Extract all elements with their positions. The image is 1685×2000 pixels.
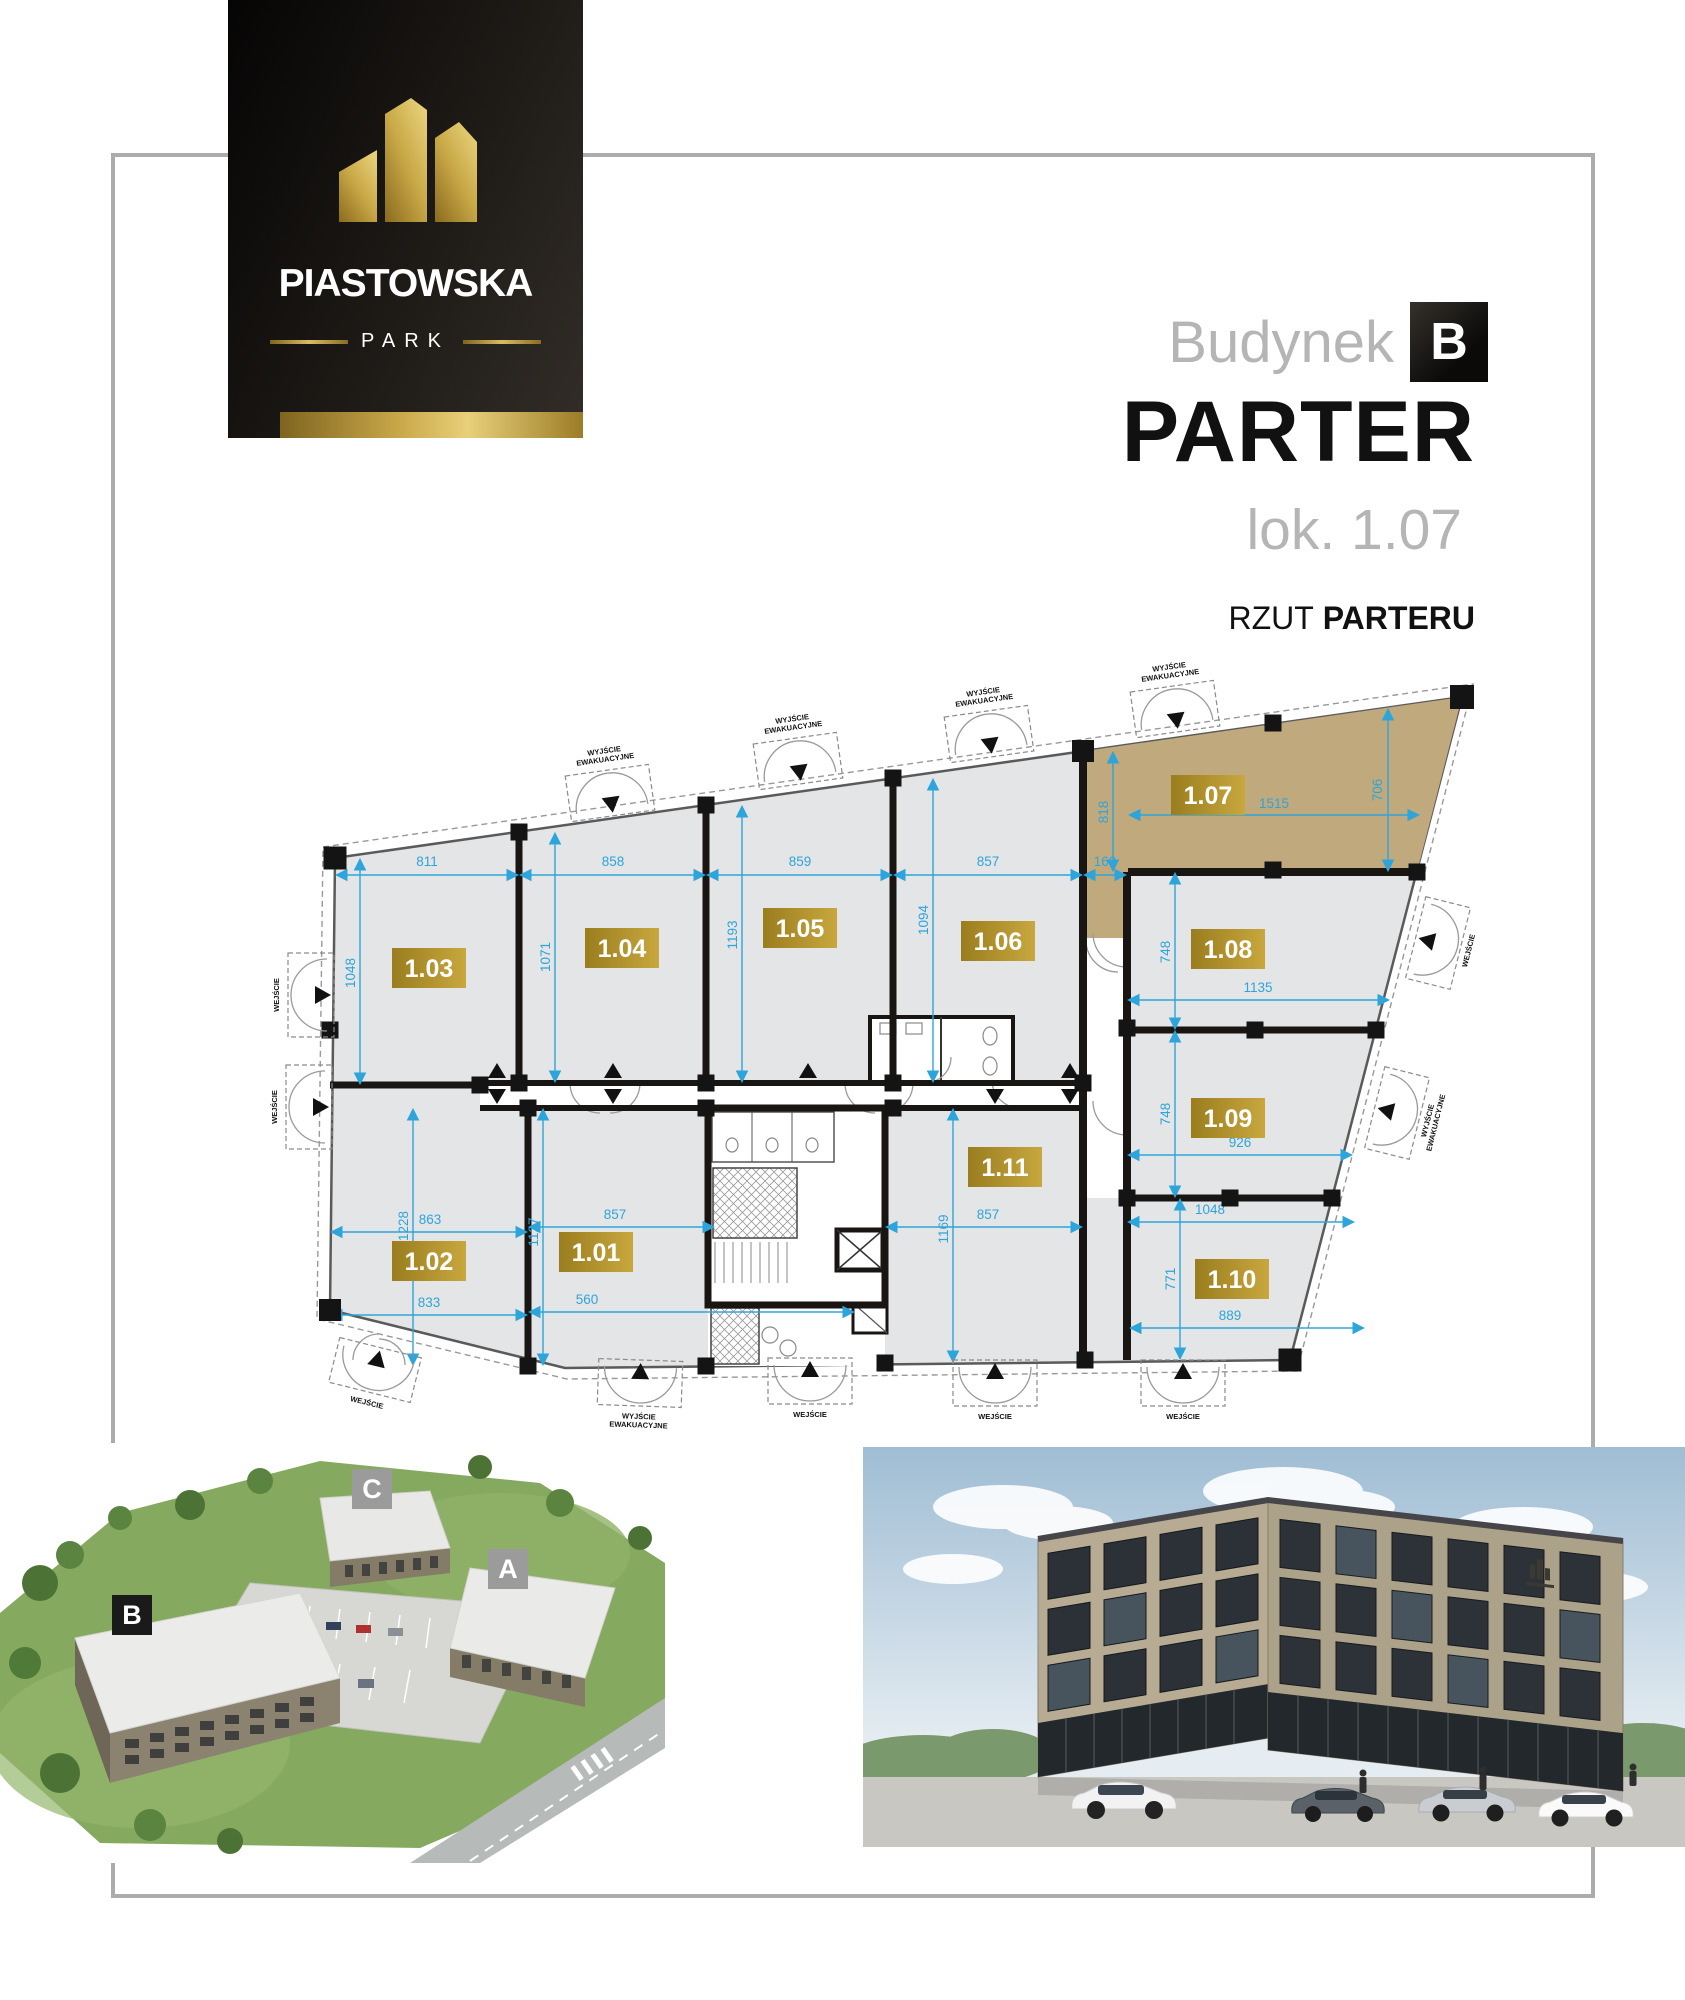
building-letter-badge: B (1410, 302, 1488, 382)
room-badge-1.03: 1.03 (392, 948, 466, 988)
column (1265, 862, 1282, 879)
column (322, 1022, 339, 1039)
column (885, 1100, 902, 1117)
gold-line-left (270, 340, 348, 344)
dim-label: 857 (604, 1207, 627, 1222)
svg-text:WEJŚCIE: WEJŚCIE (270, 1090, 279, 1124)
svg-text:WYJŚCIEEWAKUACYJNE: WYJŚCIEEWAKUACYJNE (763, 710, 823, 735)
entrance-door: WEJŚCIE (270, 1065, 332, 1149)
column (1119, 1190, 1136, 1207)
site-badge-b: B (112, 1595, 152, 1635)
svg-text:WEJŚCIE: WEJŚCIE (1166, 1412, 1200, 1421)
svg-text:WYJŚCIEEWAKUACYJNE: WYJŚCIEEWAKUACYJNE (1416, 1091, 1447, 1152)
svg-text:WYJŚCIEEWAKUACYJNE: WYJŚCIEEWAKUACYJNE (575, 742, 635, 767)
dim-label: 1071 (538, 942, 553, 972)
column (319, 1299, 341, 1321)
column (698, 1075, 715, 1092)
dim-label: 1193 (725, 920, 740, 949)
column (1324, 1190, 1341, 1207)
entrance-door: WEJŚCIE (1141, 1360, 1225, 1421)
dim-label: 857 (977, 854, 1000, 869)
column (472, 1077, 489, 1094)
svg-text:1.06: 1.06 (974, 928, 1023, 956)
building-right-face (1268, 1500, 1623, 1791)
room-badge-1.05: 1.05 (763, 908, 837, 948)
svg-text:1.08: 1.08 (1204, 936, 1253, 964)
room-badge-1.08: 1.08 (1191, 929, 1265, 969)
svg-text:1.11: 1.11 (981, 1154, 1028, 1182)
svg-text:WYJŚCIEEWAKUACYJNE: WYJŚCIEEWAKUACYJNE (954, 683, 1014, 708)
column (877, 1355, 894, 1372)
column (885, 1075, 902, 1092)
evacuation-exit-door: WYJŚCIEEWAKUACYJNE (596, 1359, 682, 1431)
room-badge-1.10: 1.10 (1195, 1259, 1269, 1299)
dim-label: 859 (789, 854, 812, 869)
dim-label: 1048 (1195, 1202, 1225, 1217)
svg-text:C: C (362, 1474, 382, 1504)
dim-label: 858 (602, 854, 625, 869)
brochure-page: PIASTOWSKA PARK Budynek B PARTER lok. 1.… (0, 0, 1685, 2000)
building-label: Budynek (1168, 309, 1394, 376)
evacuation-exit-door: WYJŚCIEEWAKUACYJNE (1127, 657, 1220, 738)
building-street-render (863, 1447, 1685, 1847)
dim-label: 1169 (936, 1214, 951, 1243)
dim-label: 833 (418, 1295, 441, 1310)
dim-label: 1228 (396, 1211, 411, 1241)
dim-label: 889 (1219, 1308, 1242, 1323)
room-badge-1.02: 1.02 (392, 1241, 466, 1281)
column (1279, 1349, 1302, 1372)
entrance-door: WEJŚCIE (325, 1338, 421, 1418)
svg-text:1.05: 1.05 (776, 915, 825, 943)
evacuation-exit-door: WYJŚCIEEWAKUACYJNE (562, 741, 655, 822)
svg-text:WYJŚCIEEWAKUACYJNE: WYJŚCIEEWAKUACYJNE (609, 1411, 668, 1431)
column (1119, 1020, 1136, 1037)
dim-label: 863 (419, 1212, 442, 1227)
column (1368, 1022, 1385, 1039)
column (1265, 715, 1282, 732)
aerial-site-render: B C A (0, 1443, 665, 1863)
svg-text:1.09: 1.09 (1204, 1105, 1253, 1133)
svg-text:1.04: 1.04 (598, 935, 647, 963)
column (511, 1075, 528, 1092)
room-badge-1.11: 1.11 (968, 1147, 1042, 1187)
evacuation-exit-door: WYJŚCIEEWAKUACYJNE (750, 709, 843, 790)
dim-label: 560 (576, 1292, 599, 1307)
entrance-door: WEJŚCIE (953, 1360, 1037, 1421)
logo-buildings-icon (321, 96, 491, 224)
entrance-door: WEJŚCIE (1406, 897, 1484, 993)
plan-caption: RZUT PARTERU (1229, 600, 1476, 637)
room-badge-1.01: 1.01 (559, 1232, 633, 1272)
logo-sub-text: PARK (361, 330, 450, 353)
column (1077, 1352, 1094, 1369)
svg-text:WYJŚCIEEWAKUACYJNE: WYJŚCIEEWAKUACYJNE (1140, 658, 1200, 683)
dim-label: 1094 (916, 904, 931, 935)
svg-text:1.02: 1.02 (405, 1248, 454, 1276)
room-badge-1.07: 1.07 (1171, 775, 1245, 815)
column (520, 1100, 537, 1117)
column (511, 824, 528, 841)
dim-label: 771 (1163, 1268, 1178, 1291)
dim-label: 1048 (343, 958, 358, 988)
svg-text:1.07: 1.07 (1184, 782, 1233, 810)
site-badge-c: C (352, 1469, 392, 1509)
column (324, 847, 347, 870)
dim-label: 857 (977, 1207, 1000, 1222)
logo: PIASTOWSKA PARK (228, 0, 583, 438)
evacuation-exit-door: WYJŚCIEEWAKUACYJNE (941, 682, 1034, 763)
gold-line-right (463, 340, 541, 344)
dim-label: 811 (416, 854, 438, 869)
column (1450, 685, 1474, 709)
column (1222, 1190, 1239, 1207)
column (698, 797, 715, 814)
column (1409, 864, 1426, 881)
svg-text:WEJŚCIE: WEJŚCIE (272, 978, 281, 1012)
column (698, 1100, 715, 1117)
svg-text:1.03: 1.03 (405, 955, 454, 983)
logo-gold-bar (280, 412, 583, 438)
svg-text:1.01: 1.01 (572, 1239, 621, 1267)
floor-title: PARTER (1122, 383, 1475, 482)
svg-text:WEJŚCIE: WEJŚCIE (978, 1412, 1012, 1421)
room-badge-1.06: 1.06 (961, 921, 1035, 961)
dim-label: 748 (1158, 1103, 1173, 1126)
floor-plan: 8118588598571601515113592610488898638578… (225, 515, 1505, 1435)
column (520, 1358, 537, 1375)
dim-label: 818 (1096, 801, 1111, 824)
room-badge-1.09: 1.09 (1191, 1098, 1265, 1138)
svg-text:WEJŚCIE: WEJŚCIE (349, 1394, 384, 1411)
evacuation-exit-door: WYJŚCIEEWAKUACYJNE (1365, 1067, 1451, 1165)
unit-subtitle: lok. 1.07 (1247, 497, 1462, 563)
svg-text:WEJŚCIE: WEJŚCIE (793, 1410, 827, 1419)
site-badge-a: A (488, 1549, 528, 1589)
svg-text:A: A (498, 1554, 518, 1584)
svg-text:1.10: 1.10 (1208, 1266, 1257, 1294)
dim-label: 1515 (1259, 796, 1289, 811)
column (885, 770, 902, 787)
dim-label: 1127 (526, 1217, 541, 1246)
column (1072, 740, 1094, 762)
dim-label: 706 (1370, 779, 1385, 802)
entrance-door: WEJŚCIE (768, 1358, 852, 1419)
svg-text:B: B (122, 1600, 142, 1630)
corridor-vertical (1084, 938, 1127, 1198)
room-badge-1.04: 1.04 (585, 928, 659, 968)
logo-brand-text: PIASTOWSKA (228, 262, 583, 306)
column (1247, 1022, 1264, 1039)
svg-text:WEJŚCIE: WEJŚCIE (1460, 933, 1477, 968)
column (698, 1358, 715, 1375)
building-left-face (1038, 1500, 1268, 1777)
dim-label: 748 (1158, 941, 1173, 964)
dim-label: 1135 (1243, 980, 1272, 995)
